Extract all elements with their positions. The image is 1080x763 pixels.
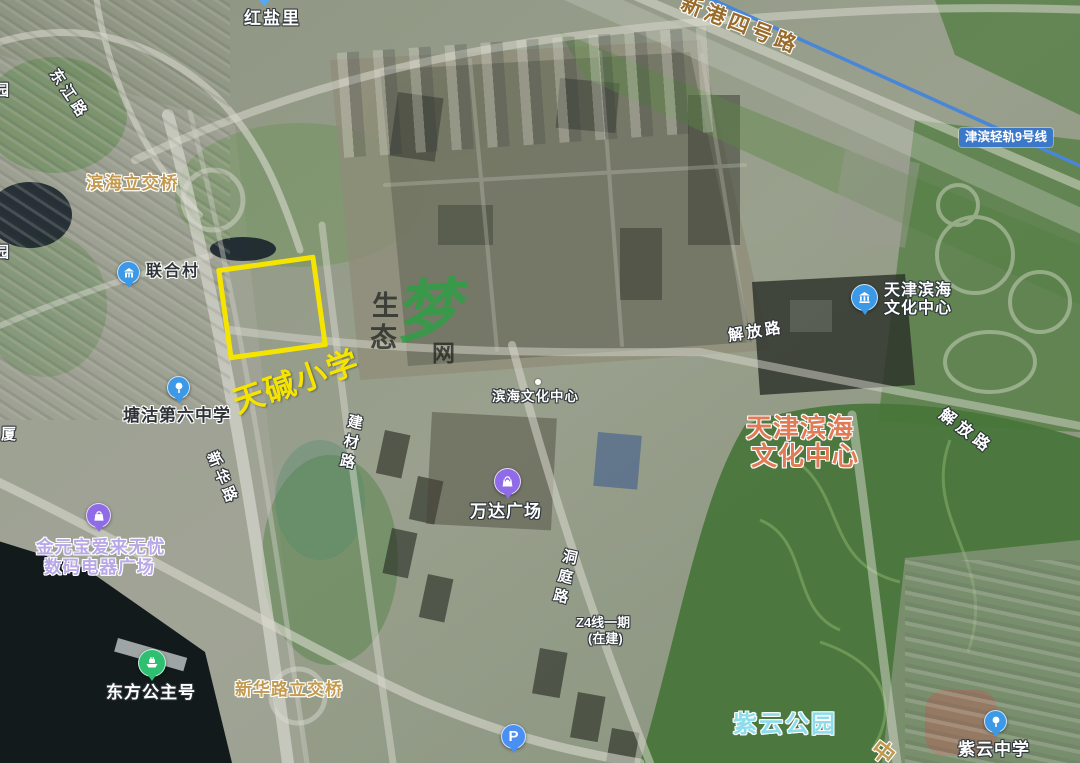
school-pin-icon[interactable] — [984, 710, 1007, 733]
poi-label-lianhecun[interactable]: 联合村 — [146, 263, 200, 281]
poi-label-wanda-plaza[interactable]: 万达广场 — [470, 502, 542, 522]
parking-letter: P — [508, 729, 518, 744]
map-canvas[interactable]: 生 态 梦 网 东江路 新华路 建材路 洞庭路 解放路 解放路 新港四号路 中 … — [0, 0, 1080, 763]
watermark-char-wang: 网 — [432, 334, 455, 368]
bridge-label-binhai-interchange: 滨海立交桥 — [86, 173, 179, 193]
transit-label-z4-line1: Z4线一期 — [576, 616, 630, 631]
poi-label-ziyun-school[interactable]: 紫云中学 — [958, 740, 1030, 760]
edge-label-sha: 厦 — [1, 426, 16, 443]
school-pin-icon[interactable] — [167, 376, 190, 399]
big-label-tj-binhai-line2: 文化中心 — [751, 442, 859, 472]
poi-label-hongyanli[interactable]: 红盐里 — [244, 9, 301, 29]
edge-label-yuan-top: 园 — [0, 82, 9, 99]
rail-line9-badge: 津滨轻轨9号线 — [959, 128, 1053, 147]
poi-label-tj-binhai-culture-line2[interactable]: 文化中心 — [884, 300, 952, 318]
poi-label-tj-binhai-culture-line1[interactable]: 天津滨海 — [884, 282, 952, 300]
poi-label-jinyuanbao-line1[interactable]: 金元宝爱来无忧 — [36, 537, 166, 557]
bridge-label-xinhua-interchange: 新华路立交桥 — [235, 680, 343, 700]
mall-icon[interactable] — [86, 503, 111, 528]
big-label-ziyun-park: 紫云公园 — [733, 711, 837, 739]
highlight-rectangle — [216, 254, 328, 360]
parking-icon[interactable]: P — [501, 724, 526, 749]
transit-label-z4-line2: (在建) — [588, 632, 623, 647]
mall-icon[interactable] — [494, 468, 521, 495]
scenic-ship-icon[interactable] — [138, 649, 166, 677]
poi-label-tanggu-no6-school[interactable]: 塘沽第六中学 — [123, 406, 231, 426]
poi-label-jinyuanbao-line2[interactable]: 数码电器广场 — [44, 557, 155, 577]
poi-label-binhai-culture-small[interactable]: 滨海文化中心 — [492, 389, 579, 405]
poi-label-oriental-princess[interactable]: 东方公主号 — [106, 683, 196, 703]
big-label-tj-binhai-line1: 天津滨海 — [746, 414, 854, 444]
museum-icon[interactable] — [851, 284, 878, 311]
village-icon[interactable] — [117, 261, 140, 284]
poi-dot-icon[interactable] — [535, 379, 541, 385]
edge-label-yuan-mid: 园 — [0, 244, 9, 261]
watermark-char-tai: 态 — [370, 316, 397, 355]
